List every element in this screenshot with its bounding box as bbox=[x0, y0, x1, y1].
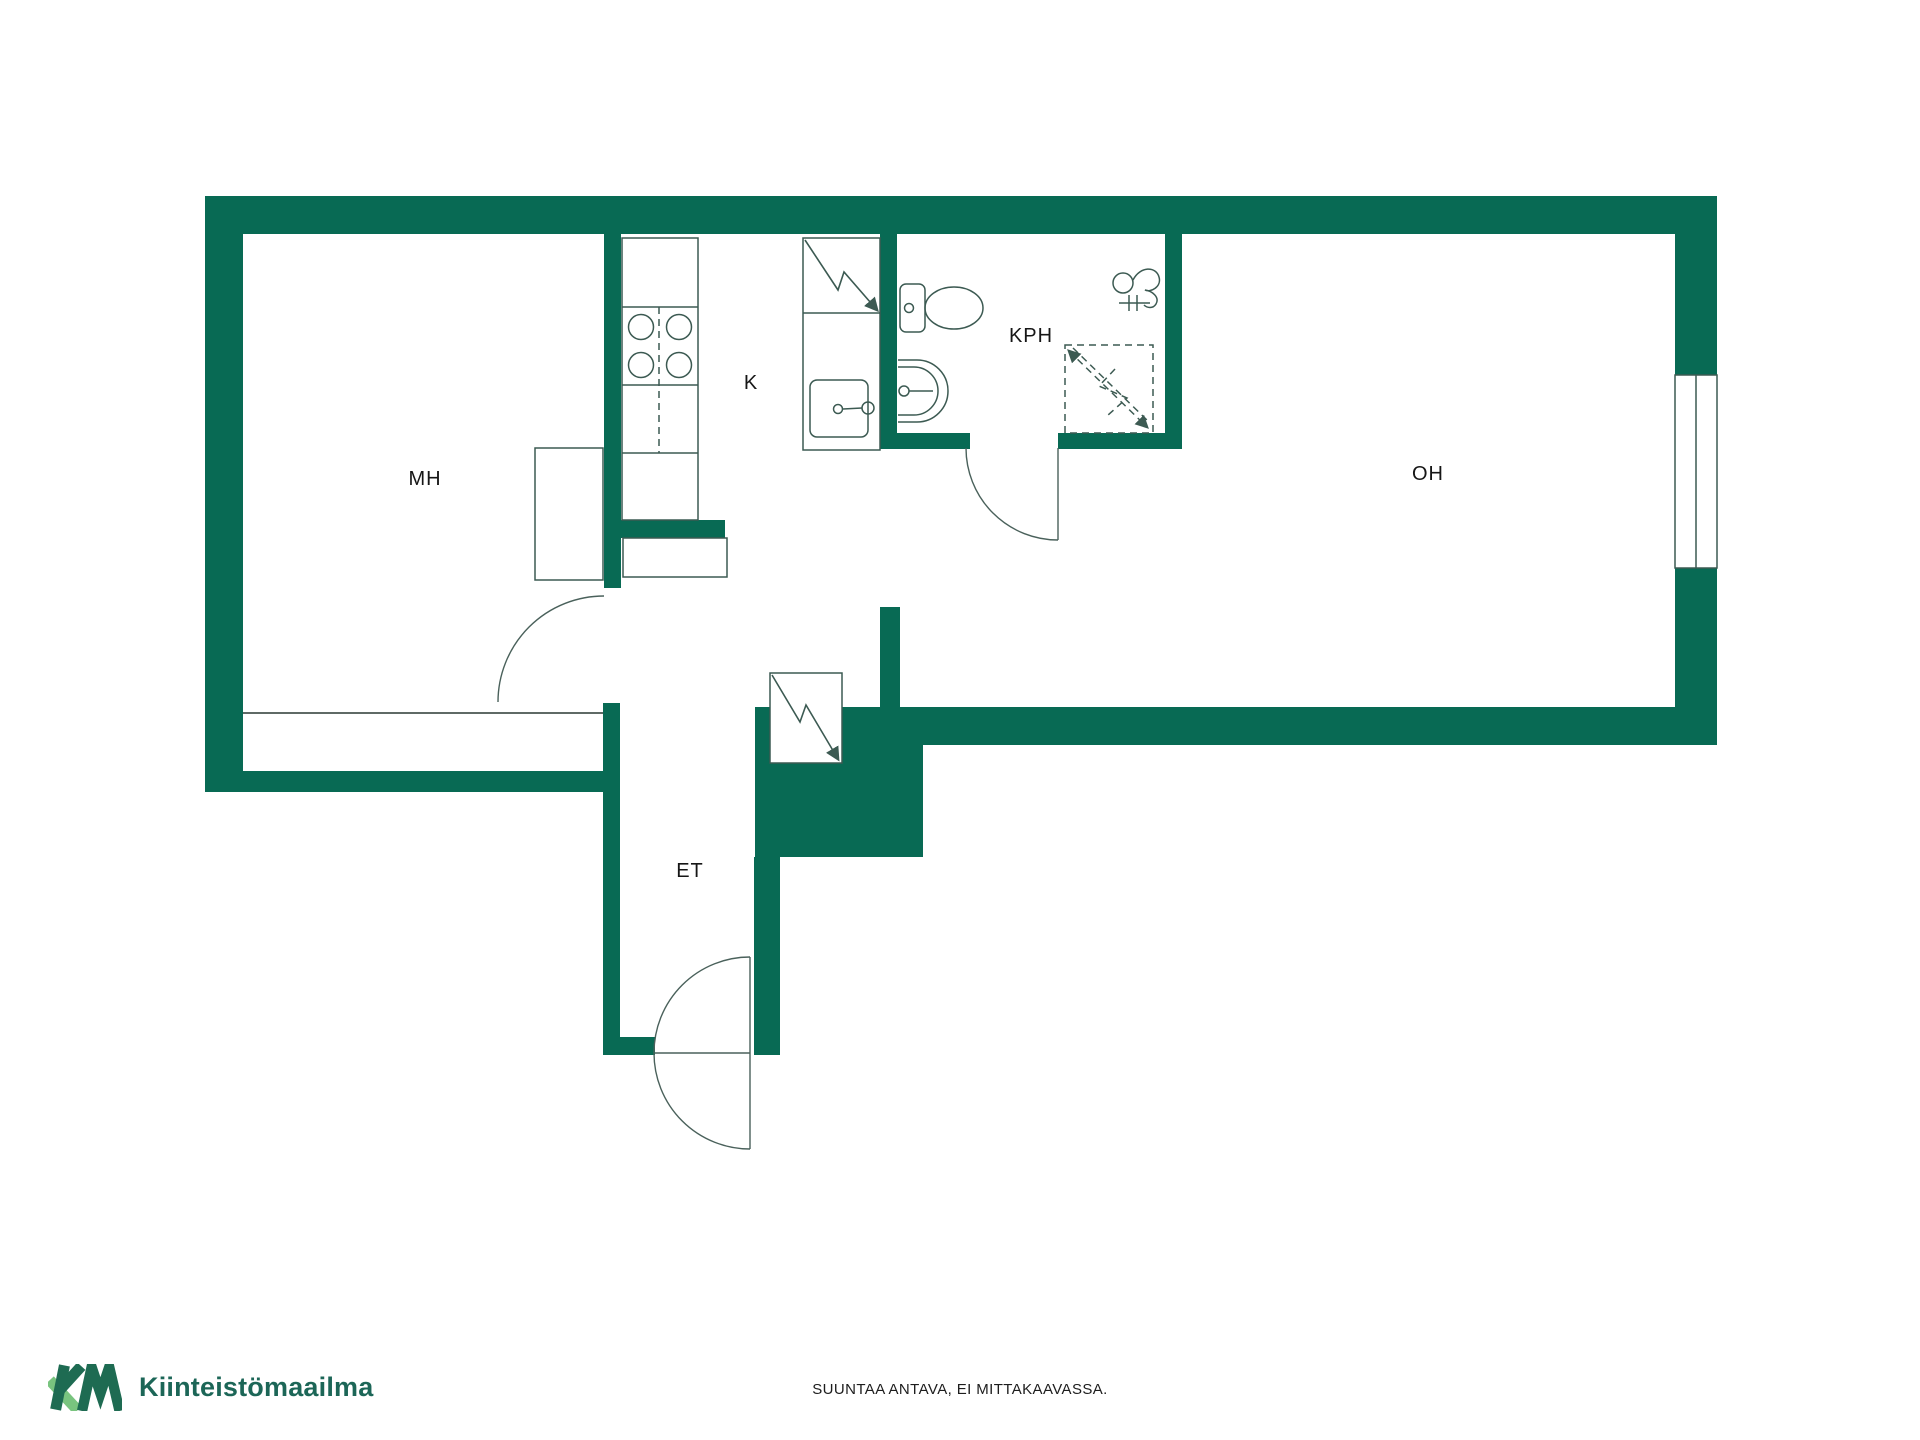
wall-oh-bottom bbox=[842, 707, 1717, 745]
room-label-bathroom: KPH bbox=[1009, 325, 1053, 347]
room-label-entry-hall: ET bbox=[676, 860, 704, 882]
window-living-room bbox=[1675, 375, 1717, 568]
wall-kitchen-stub bbox=[604, 520, 725, 538]
bathroom-fixtures bbox=[898, 269, 1159, 433]
door-swing-bathroom bbox=[966, 448, 1058, 540]
toilet-icon bbox=[900, 284, 983, 332]
wall-top bbox=[205, 196, 1717, 234]
wall-kph-bottom-right bbox=[1058, 433, 1182, 449]
wall-corridor-left bbox=[603, 703, 620, 1055]
wall-left bbox=[205, 196, 243, 792]
brand-logo: Kiinteistömaailma bbox=[48, 1364, 373, 1411]
kitchen-counter bbox=[622, 238, 698, 520]
door-swing-entry bbox=[654, 957, 750, 1149]
room-label-kitchen: K bbox=[744, 372, 758, 394]
wall-hall-stub bbox=[880, 607, 900, 709]
room-label-bedroom: MH bbox=[408, 468, 441, 490]
towel-hook-icon bbox=[1113, 269, 1159, 311]
electrical-panel-box bbox=[770, 673, 842, 763]
wall-corridor-right bbox=[754, 857, 780, 1055]
wall-divider-k-kph bbox=[880, 225, 897, 448]
floor-plan: MH K KPH OH ET bbox=[0, 0, 1920, 1440]
shower-icon bbox=[1065, 345, 1153, 433]
wall-entry-stub-left bbox=[603, 1037, 655, 1055]
kitchen-lower-cabinet bbox=[623, 538, 727, 577]
wall-right-upper bbox=[1675, 196, 1717, 375]
wall-mh-sill bbox=[205, 771, 620, 792]
km-logo-icon bbox=[48, 1364, 122, 1411]
wall-right-lower bbox=[1675, 568, 1717, 745]
walls bbox=[205, 196, 1717, 1055]
washbasin-icon bbox=[898, 360, 948, 422]
door-swing-bedroom bbox=[498, 596, 604, 702]
wall-kph-bottom-left bbox=[880, 433, 970, 449]
room-label-living-room: OH bbox=[1412, 463, 1444, 485]
wall-kph-right bbox=[1165, 225, 1182, 448]
brand-name: Kiinteistömaailma bbox=[139, 1372, 373, 1403]
wardrobe bbox=[535, 448, 603, 580]
